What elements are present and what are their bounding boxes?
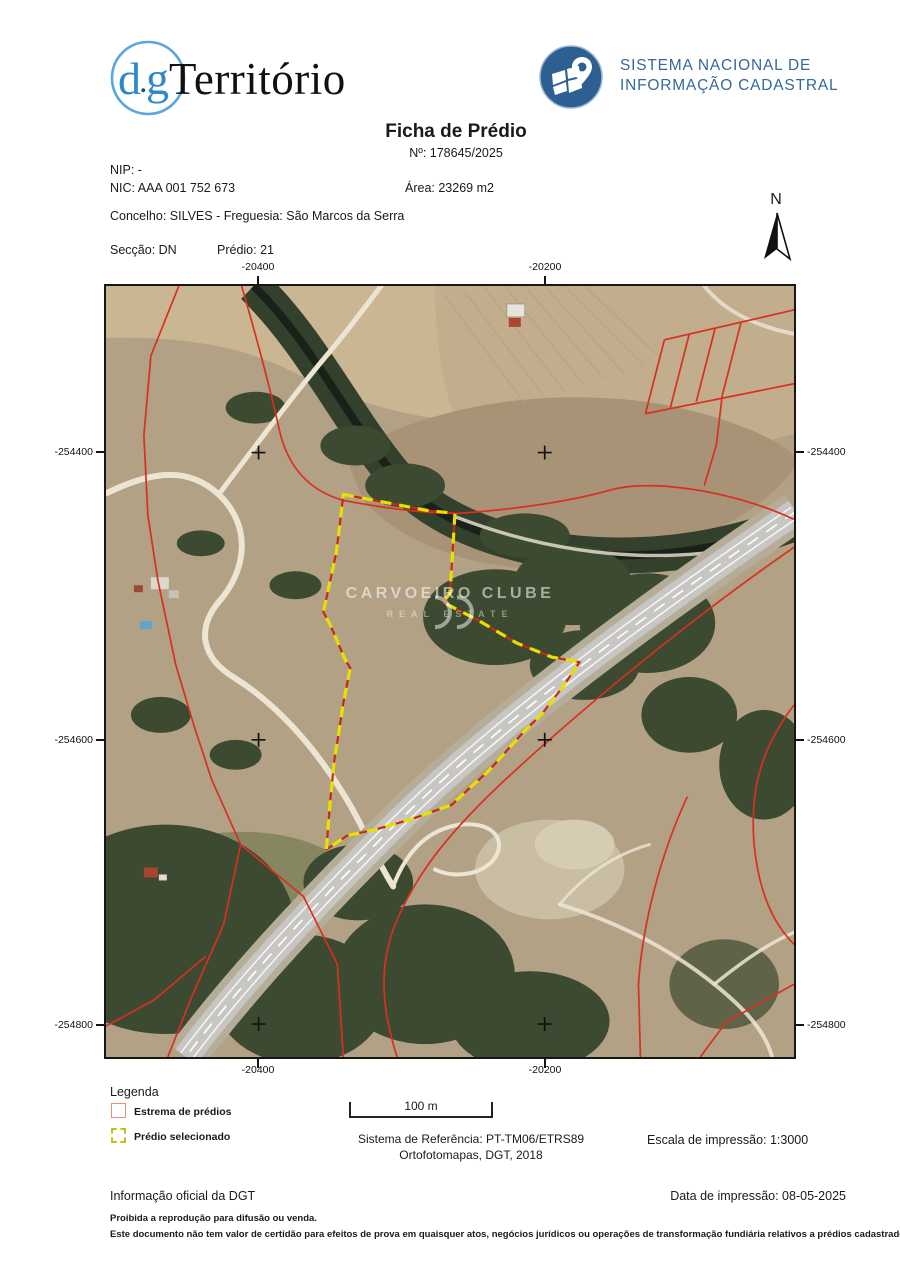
- scale-bar: 100 m: [349, 1102, 493, 1118]
- snic-line2: INFORMAÇÃO CADASTRAL: [620, 76, 838, 96]
- x-label-top-2: -20200: [515, 261, 575, 273]
- nic-field: NIC: AAA 001 752 673: [110, 181, 235, 195]
- legend-item-estrema: Estrema de prédios: [134, 1106, 231, 1118]
- y-label-right-3: -254800: [807, 1019, 846, 1031]
- reference-line2: Ortofotomapas, DGT, 2018: [328, 1147, 614, 1163]
- tick-top-2: [544, 276, 546, 285]
- reference-system: Sistema de Referência: PT-TM06/ETRS89 Or…: [328, 1131, 614, 1163]
- x-label-top-1: -20400: [228, 261, 288, 273]
- dgt-logo: d . g Território: [96, 36, 436, 124]
- dgt-letter-d: d: [118, 53, 141, 104]
- y-label-left-2: -254600: [33, 734, 93, 746]
- y-label-left-1: -254400: [33, 446, 93, 458]
- notice-line2: Este documento não tem valor de certidão…: [110, 1229, 900, 1240]
- nip-field: NIP: -: [110, 163, 142, 177]
- snic-wordmark: SISTEMA NACIONAL DE INFORMAÇÃO CADASTRAL: [620, 56, 838, 96]
- tick-left-3: [96, 1024, 105, 1026]
- y-label-left-3: -254800: [33, 1019, 93, 1031]
- y-label-right-2: -254600: [807, 734, 846, 746]
- tick-right-2: [795, 739, 804, 741]
- print-scale: Escala de impressão: 1:3000: [647, 1133, 808, 1147]
- document-number: Nº: 178645/2025: [0, 146, 900, 160]
- snic-map-pin-icon: [538, 44, 604, 110]
- tick-left-1: [96, 451, 105, 453]
- scale-bar-label: 100 m: [404, 1099, 437, 1113]
- y-label-right-1: -254400: [807, 446, 846, 458]
- orthophoto-map-graphic: [106, 286, 794, 1057]
- tick-right-1: [795, 451, 804, 453]
- reference-line1: Sistema de Referência: PT-TM06/ETRS89: [328, 1131, 614, 1147]
- ficha-de-predio-page: d . g Território SISTEMA NACIONAL DE INF…: [0, 0, 900, 1273]
- north-label: N: [761, 191, 791, 209]
- north-arrow-icon: [757, 211, 797, 263]
- snic-logo: SISTEMA NACIONAL DE INFORMAÇÃO CADASTRAL: [538, 44, 868, 116]
- print-date: Data de impressão: 08-05-2025: [560, 1189, 846, 1203]
- x-label-bottom-2: -20200: [515, 1064, 575, 1076]
- municipality-field: Concelho: SILVES - Freguesia: São Marcos…: [110, 209, 404, 223]
- cadastral-map: CARVOEIRO CLUBE REAL ESTATE: [104, 284, 796, 1059]
- tick-left-2: [96, 739, 105, 741]
- official-info: Informação oficial da DGT: [110, 1189, 255, 1203]
- section-field: Secção: DN: [110, 243, 177, 257]
- area-field: Área: 23269 m2: [405, 181, 494, 195]
- legend-title: Legenda: [110, 1085, 159, 1099]
- tick-top-1: [257, 276, 259, 285]
- legend-swatch-selected-parcel: [111, 1128, 126, 1143]
- x-label-bottom-1: -20400: [228, 1064, 288, 1076]
- legend-item-selecionado: Prédio selecionado: [134, 1131, 230, 1143]
- notice-line1: Proibida a reprodução para difusão ou ve…: [110, 1213, 317, 1224]
- tick-right-3: [795, 1024, 804, 1026]
- page-title: Ficha de Prédio: [0, 121, 900, 143]
- snic-line1: SISTEMA NACIONAL DE: [620, 56, 838, 76]
- dgt-letter-g: g: [146, 53, 169, 104]
- parcel-field: Prédio: 21: [217, 243, 274, 257]
- dgt-logo-graphic: d . g Território: [96, 36, 436, 124]
- legend-swatch-parcel-boundary: [111, 1103, 126, 1118]
- dgt-wordmark: Território: [169, 54, 346, 104]
